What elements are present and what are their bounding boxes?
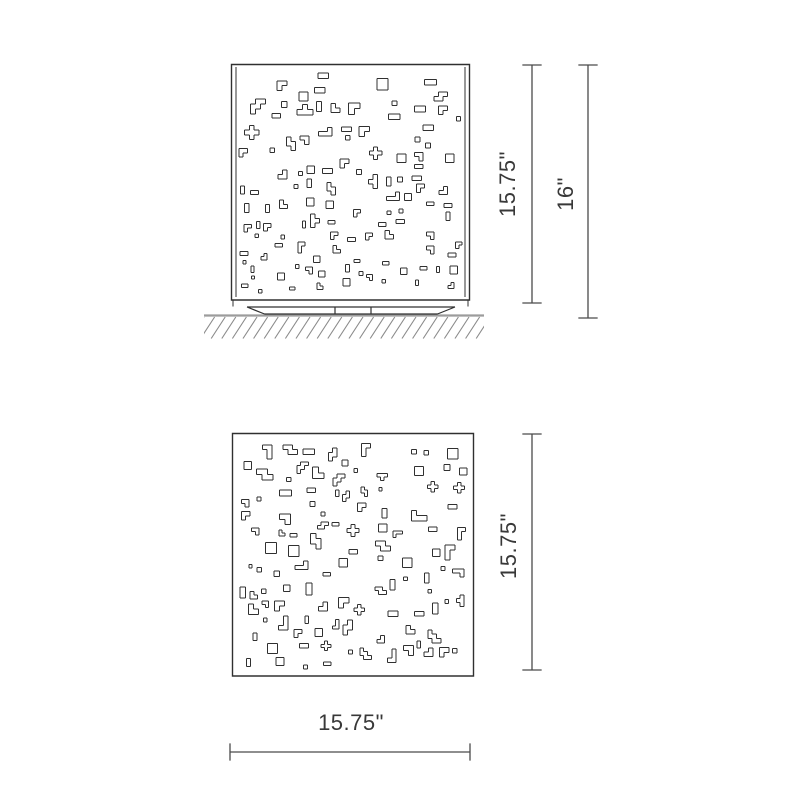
plan-width-dimension-label: 15.75" [318, 712, 384, 734]
dimension-drawing-canvas: 15.75" 16" 15.75" 15.75" [0, 0, 800, 800]
plan-depth-dimension-label: 15.75" [498, 513, 520, 579]
front-panel-height-dimension-label: 15.75" [497, 151, 519, 217]
ground-hatch-lines [190, 317, 501, 339]
front-overall-height-dimension-label: 16" [555, 177, 577, 211]
plan-view-outline [233, 434, 474, 677]
technical-drawing [0, 0, 800, 800]
front-elevation-outline [232, 65, 470, 315]
front-elevation-perforation-pattern [239, 73, 462, 293]
plan-view-perforation-pattern [240, 444, 467, 670]
